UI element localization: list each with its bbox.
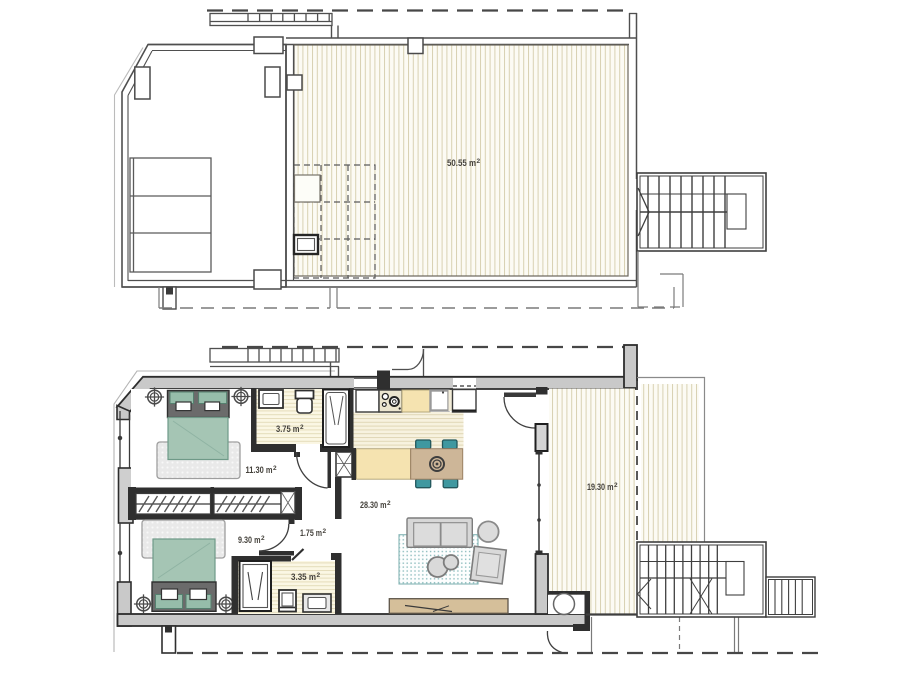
svg-text:1.75 m: 1.75 m bbox=[300, 528, 322, 539]
svg-text:19.30 m: 19.30 m bbox=[587, 482, 614, 493]
svg-text:2: 2 bbox=[317, 572, 321, 579]
svg-text:3.75 m: 3.75 m bbox=[276, 424, 300, 435]
svg-text:28.30 m: 28.30 m bbox=[360, 500, 387, 511]
svg-text:9.30 m: 9.30 m bbox=[238, 535, 261, 546]
svg-text:50.55 m: 50.55 m bbox=[447, 158, 476, 169]
svg-text:11.30 m: 11.30 m bbox=[246, 465, 273, 476]
svg-text:2: 2 bbox=[323, 528, 327, 535]
svg-text:3.35 m: 3.35 m bbox=[291, 572, 316, 583]
svg-text:2: 2 bbox=[477, 158, 481, 165]
svg-text:2: 2 bbox=[300, 424, 304, 431]
svg-text:2: 2 bbox=[261, 535, 265, 542]
svg-text:2: 2 bbox=[387, 500, 391, 507]
svg-text:2: 2 bbox=[614, 482, 618, 489]
svg-text:2: 2 bbox=[273, 465, 277, 472]
